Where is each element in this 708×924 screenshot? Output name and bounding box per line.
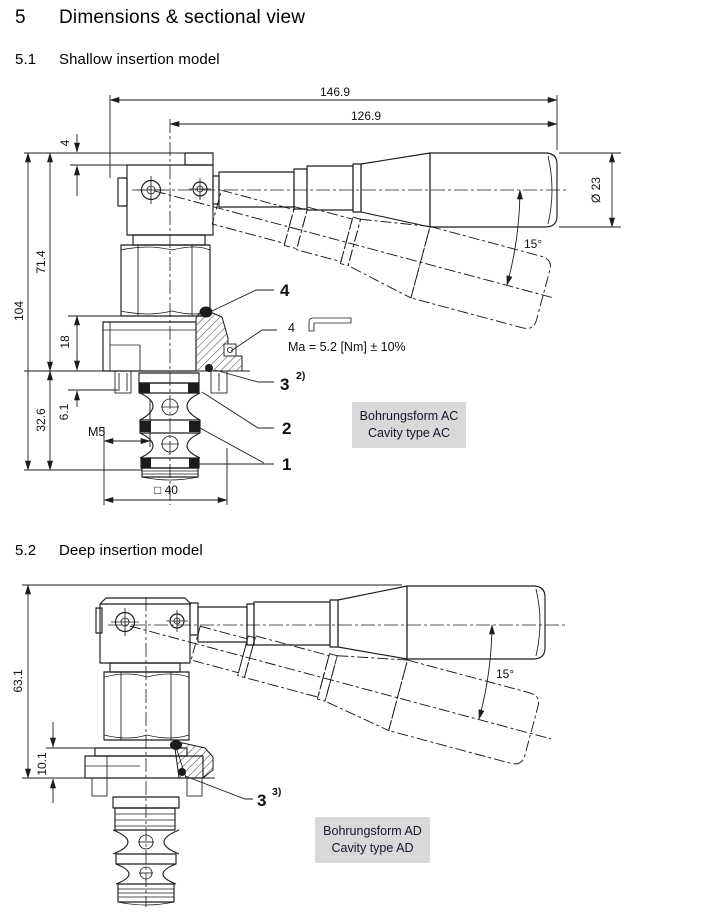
- dim-lever-length: 126.9: [351, 109, 381, 123]
- dim-deep-lever-angle: 15°: [496, 667, 514, 681]
- dim-overall-height: 104: [12, 301, 26, 321]
- deep-dimension-lines: [28, 585, 492, 803]
- dim-deep-flange-height: 10.1: [35, 752, 49, 776]
- dim-lever-angle: 15°: [524, 237, 542, 251]
- shallow-extension-lines: [24, 95, 621, 505]
- dim-insertion-depth: 32.6: [34, 408, 48, 432]
- dim-thread: M5: [88, 425, 105, 439]
- shallow-valve-body: [103, 153, 242, 480]
- deep-valve-body: [85, 598, 213, 905]
- retaining-nut-section: [196, 309, 242, 371]
- torque-spec: Ma = 5.2 [Nm] ± 10%: [288, 340, 406, 354]
- deep-upper-seal: [170, 740, 182, 750]
- deep-backup-ring-seal: [178, 768, 186, 776]
- dim-body-height: 71.4: [34, 250, 48, 274]
- upper-seal: [200, 307, 213, 318]
- dim-deep-overall-height: 63.1: [11, 669, 25, 693]
- callout-item-1: 1: [282, 455, 291, 474]
- datasheet-page: 5 Dimensions & sectional view 5.1 Shallo…: [0, 0, 708, 924]
- dim-port-offset: 6.1: [57, 403, 71, 420]
- dim-square-flange: □ 40: [154, 483, 178, 497]
- deep-pivot-screw: [111, 608, 139, 636]
- dim-lever-diameter: Ø 23: [589, 177, 603, 203]
- deep-extension-lines: [22, 585, 402, 778]
- deep-callout-item-3: 3: [257, 791, 266, 810]
- deep-hand-lever-horizontal: [190, 586, 545, 659]
- backup-ring-seal: [205, 364, 213, 372]
- deep-model-drawing: 63.1 10.1 15°: [11, 585, 566, 907]
- dim-overall-length: 146.9: [320, 85, 350, 99]
- callout-item-4: 4: [280, 281, 290, 300]
- callout-item-3-note: 2): [296, 370, 305, 382]
- shallow-model-drawing: 146.9 126.9 104 71.4 32.6 4 18 6.1 Ø 23 …: [12, 85, 621, 505]
- dim-top-step: 4: [58, 139, 72, 146]
- callout-item-3: 3: [280, 375, 289, 394]
- hex-body: [121, 245, 210, 316]
- dim-flange-height: 18: [58, 335, 72, 349]
- cartridge-spool: [139, 373, 200, 480]
- wrench-size-label: 4: [288, 321, 295, 335]
- deep-hex-body: [104, 672, 189, 740]
- callout-item-2: 2: [282, 419, 291, 438]
- allen-key-icon: [309, 318, 351, 331]
- technical-drawing-canvas: 146.9 126.9 104 71.4 32.6 4 18 6.1 Ø 23 …: [0, 0, 708, 924]
- deep-cover-screw: [166, 610, 188, 632]
- cover-screw: [189, 178, 211, 200]
- pivot-screw: [137, 176, 165, 204]
- deep-callout-leader: [185, 776, 253, 799]
- deep-callout-item-3-note: 3): [272, 786, 281, 798]
- shallow-dimension-lines: [28, 100, 612, 500]
